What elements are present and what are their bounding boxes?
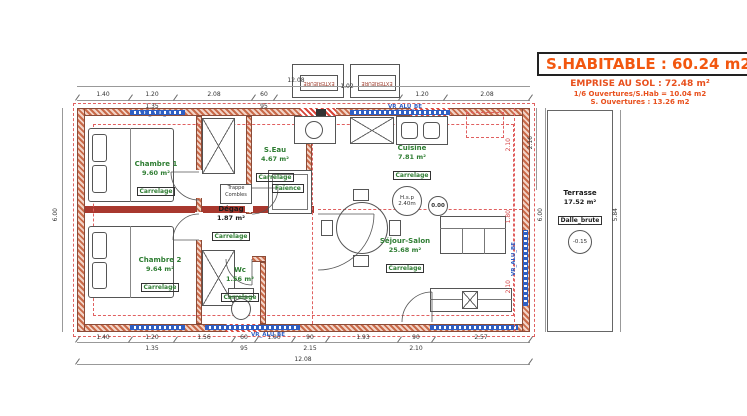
- dim-bottom: 90: [306, 335, 314, 341]
- dim-line-top-row: [77, 100, 530, 101]
- window-tag-bay: VR_ALU_BE: [512, 242, 518, 276]
- dim-top-sub: 95: [260, 104, 268, 110]
- dim-top: 2.08: [480, 92, 493, 98]
- dim-bottom-sub: 2.15: [303, 346, 316, 352]
- room-label-terrasse: Terrasse 17.52 m² Dalle_brute: [550, 189, 610, 227]
- dim-line-terrasse: [620, 110, 621, 332]
- room-label-chambre2: Chambre 2 9.64 m² Carrelage: [130, 256, 190, 294]
- window-tag-bottom: VR_ALU_BE: [251, 333, 285, 339]
- dim-top-sub: 1.35: [145, 104, 158, 110]
- window-tag-top: VR_ALU_BE: [140, 112, 174, 118]
- dim-left-height: 6.00: [53, 208, 59, 221]
- room-label-wc: Wc 1.56 m² Carrelage: [214, 266, 266, 304]
- floor-plan: S.HABITABLE : 60.24 m2 EMPRISE AU SOL : …: [0, 0, 747, 416]
- dim-line-top-total: [77, 86, 530, 87]
- dim-top: 1.40: [96, 92, 109, 98]
- exterior-tag-text: EXTERIEURE: [300, 75, 338, 91]
- dim-top-total: 12.08: [287, 78, 304, 84]
- dim-top: 60: [260, 92, 268, 98]
- exterior-tag-box-2: EXTERIEURE: [350, 64, 400, 98]
- exterior-tag-text: EXTERIEURE: [358, 75, 396, 91]
- dim-right-red: 2.10: [506, 280, 512, 293]
- dim-line-bottom-row: [77, 342, 530, 343]
- dim-terrasse-height: 5.84: [613, 208, 619, 221]
- dim-top: 2.08: [207, 92, 220, 98]
- dim-top: 1.02: [340, 84, 353, 90]
- dim-right-red: 1.80: [506, 210, 512, 223]
- dim-line-left: [62, 108, 63, 332]
- dim-bottom: 90: [412, 335, 420, 341]
- ceiling-height-marker: H.s.p 2.40m: [392, 186, 422, 216]
- level-marker-zero: 0.00: [428, 196, 448, 216]
- dim-bottom: 2.57: [474, 335, 487, 341]
- dim-bottom: 60: [240, 335, 248, 341]
- dim-bottom-sub: 2.10: [409, 346, 422, 352]
- window-tag-top-2: VR_ALU_BE: [388, 105, 422, 111]
- dim-bottom-total: 12.08: [294, 357, 311, 363]
- dim-bottom: 1.20: [145, 335, 158, 341]
- dim-right-red: 2.10: [506, 138, 512, 151]
- dim-line-right-full: [545, 108, 546, 332]
- dim-top: 1.20: [415, 92, 428, 98]
- dim-right-height: 6.00: [538, 208, 544, 221]
- dim-line-right-red: [514, 108, 515, 332]
- level-marker-terrasse: -0.15: [568, 230, 592, 254]
- room-label-sejour: Séjour-Salon 25.68 m² Carrelage: [374, 237, 436, 275]
- room-label-degag: Dégag 1.87 m² Carrelage: [208, 205, 254, 243]
- dim-bottom-sub: 1.35: [145, 346, 158, 352]
- faience-label: Faïence: [272, 184, 304, 193]
- dim-line-right-inner: [536, 108, 537, 190]
- dim-line-bottom-total: [77, 364, 530, 365]
- door-arcs: [0, 0, 747, 416]
- dim-bottom: 1.93: [356, 335, 369, 341]
- dim-top: 1.20: [145, 92, 158, 98]
- room-label-cuisine: Cuisine 7.81 m² Carrelage: [385, 144, 439, 182]
- room-label-chambre1: Chambre 1 9.60 m² Carrelage: [126, 160, 186, 198]
- dim-bottom: 1.56: [197, 335, 210, 341]
- dim-bottom-sub: 95: [240, 346, 248, 352]
- dim-right-inner: 2.16: [528, 136, 534, 149]
- room-label-seau: S.Eau 4.67 m² Carrelage: [247, 146, 303, 184]
- dim-bottom: 1.40: [96, 335, 109, 341]
